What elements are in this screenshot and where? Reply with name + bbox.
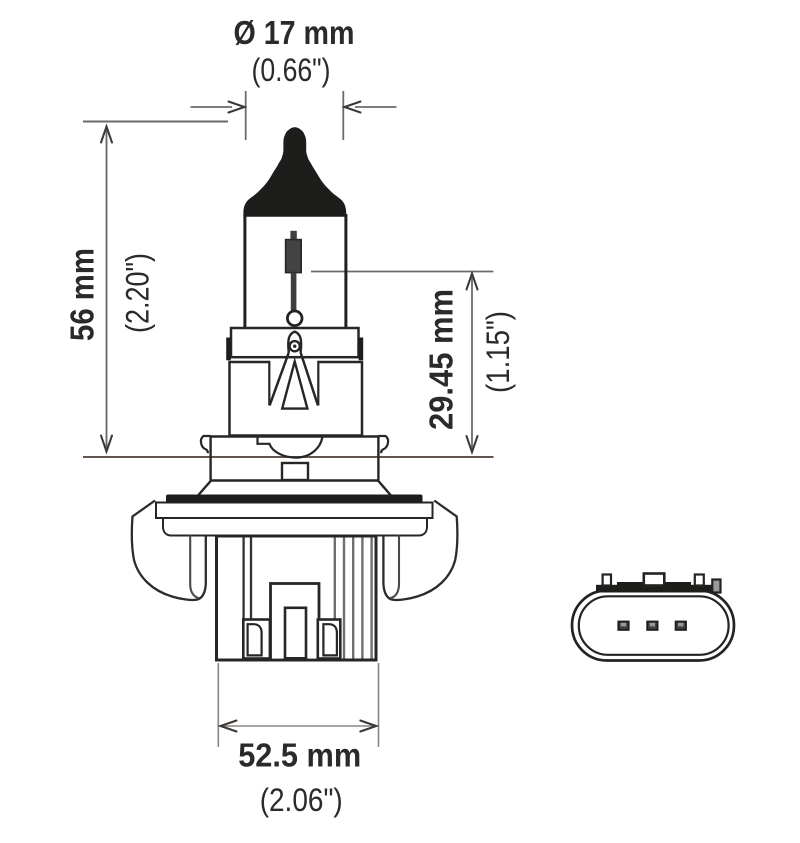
svg-text:(2.06"): (2.06") — [260, 782, 343, 818]
svg-text:(0.66"): (0.66") — [252, 52, 331, 88]
svg-text:29.45 mm: 29.45 mm — [424, 289, 461, 430]
svg-text:(1.15"): (1.15") — [480, 311, 516, 393]
svg-text:Ø 17 mm: Ø 17 mm — [234, 15, 355, 52]
svg-text:(2.20"): (2.20") — [120, 253, 156, 333]
svg-text:52.5 mm: 52.5 mm — [238, 738, 361, 775]
svg-text:56 mm: 56 mm — [65, 248, 102, 341]
